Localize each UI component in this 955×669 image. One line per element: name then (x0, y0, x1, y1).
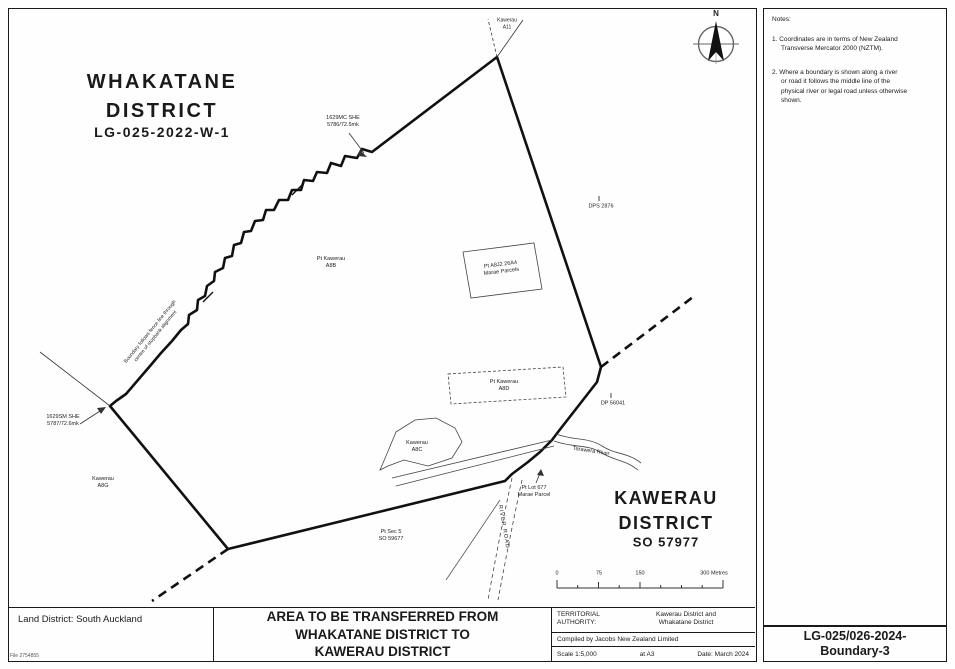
notes-panel: Notes: 1. Coordinates are in terms of Ne… (763, 8, 947, 626)
notes-title: Notes: (772, 16, 938, 23)
whakatane-district-title: WHAKATANE DISTRICT (87, 68, 238, 126)
scalebar-0: 0 (555, 570, 558, 577)
title-block: Land District: South Auckland File 27548… (8, 607, 755, 661)
kawerau-district-ref: SO 57977 (633, 535, 700, 550)
authority-cell: TERRITORIAL AUTHORITY: Kawerau District … (552, 608, 755, 661)
land-district-text: Land District: South Auckland (18, 614, 142, 625)
territorial-authority-row: TERRITORIAL AUTHORITY: Kawerau District … (552, 608, 755, 633)
parcel-label-kawerau-a11: Kawerau A11 (497, 18, 517, 31)
plan-label-dps-2876: DPS 2876 (588, 203, 613, 210)
north-label: N (713, 9, 719, 19)
survey-mark-label-top: 1629MC SHE 5786/72.5mk (326, 115, 360, 129)
parcel-label-pt-lot-677: Pt Lot 677 Marae Parcel (518, 485, 551, 499)
scale-row: Scale 1:5,000 at A3 Date: March 2024 (552, 647, 755, 661)
file-reference: File 2754855 (10, 653, 39, 659)
note-item-2: 2. Where a boundary is shown along a riv… (772, 68, 938, 106)
parcel-label-pt-kawerau-a8b: Pt Kawerau A8B (317, 256, 345, 270)
parcel-label-kawerau-a8c: Kawerau A8C (406, 440, 428, 454)
scalebar-150: 150 (635, 570, 644, 577)
whakatane-district-ref: LG-025-2022-W-1 (94, 124, 230, 140)
parcel-label-pt-kawerau-a8d: Pt Kawerau A8D (490, 379, 518, 393)
kawerau-district-title: KAWERAU DISTRICT (614, 486, 718, 536)
parcel-label-kawerau-a8g: Kawerau A8G (92, 476, 114, 490)
survey-mark-label-left: 1629SM SHE 5787/72.6mk (46, 414, 79, 428)
territorial-authority-value: Kawerau District and Whakatane District (621, 608, 755, 632)
plan-title: AREA TO BE TRANSFERRED FROM WHAKATANE DI… (213, 608, 552, 661)
scale-text: Scale 1:5,000 (557, 651, 597, 658)
paper-size-text: at A3 (640, 651, 655, 658)
compiled-by-row: Compiled by Jacobs New Zealand Limited (552, 633, 755, 647)
scalebar-75: 75 (596, 570, 602, 577)
land-district-cell: Land District: South Auckland File 27548… (8, 608, 213, 661)
compiled-by-text: Compiled by Jacobs New Zealand Limited (557, 636, 678, 643)
date-text: Date: March 2024 (697, 651, 749, 658)
scalebar-300-metres: 300 Metres (700, 570, 728, 577)
note-item-1: 1. Coordinates are in terms of New Zeala… (772, 35, 938, 54)
territorial-authority-label: TERRITORIAL AUTHORITY: (552, 608, 621, 632)
parcel-label-pt-sec-5: Pt Sec 5 SO 59677 (379, 529, 404, 543)
plan-label-dp-56041: DP 56041 (601, 400, 625, 407)
survey-plan-page: WHAKATANE DISTRICT LG-025-2022-W-1 KAWER… (0, 0, 955, 669)
sheet-reference: LG-025/026-2024- Boundary-3 (763, 626, 947, 662)
